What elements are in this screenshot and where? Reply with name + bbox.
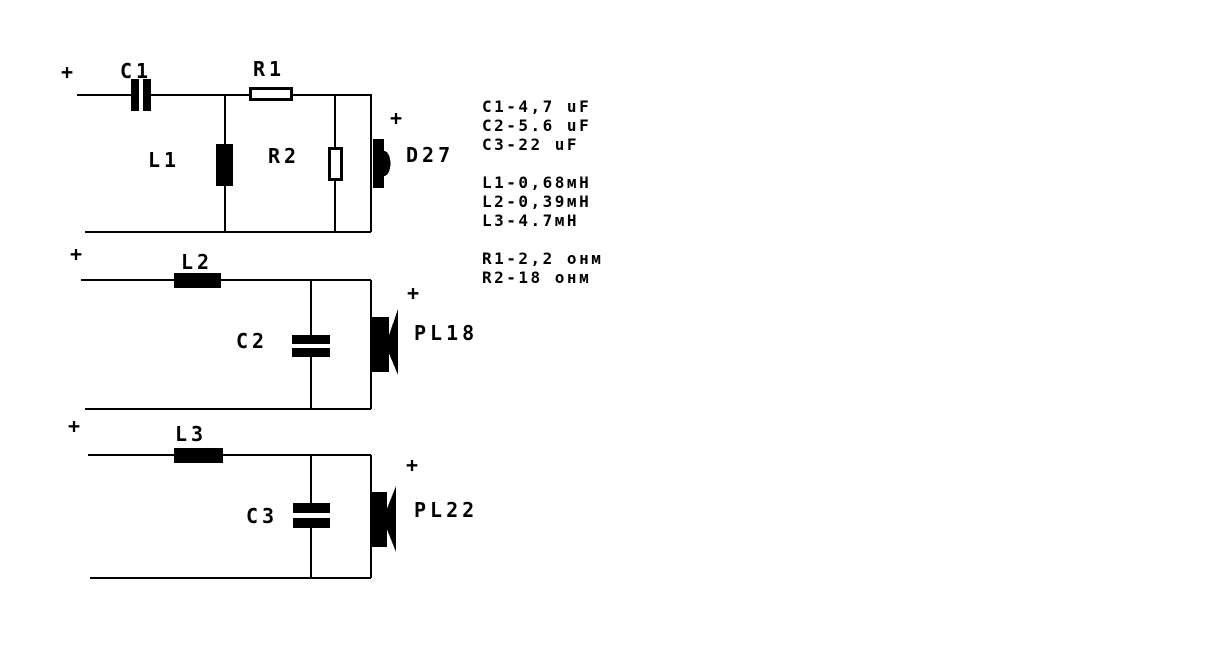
tweeter-circuit	[77, 79, 391, 232]
label-capacitor-c3: C3	[246, 506, 278, 526]
label-capacitor-c2: C2	[236, 331, 268, 351]
legend-line: L1-0,68мН	[482, 173, 591, 192]
legend-line: L2-0,39мН	[482, 192, 591, 211]
capacitor-c1-symbol	[131, 79, 151, 111]
legend-line: C2-5.6 uF	[482, 116, 591, 135]
inductor-l2-symbol	[174, 273, 221, 288]
label-resistor-r2: R2	[268, 146, 300, 166]
label-capacitor-c1: C1	[120, 61, 152, 81]
legend-inductor-values: L1-0,68мН L2-0,39мН L3-4.7мН	[482, 173, 591, 230]
speaker-pl22-symbol	[372, 486, 396, 552]
resistor-r1-symbol	[251, 89, 292, 100]
crossover-schematic: + + + + + + C1 R1 L1 R2 D27 L2 C2 PL18 L…	[0, 0, 1213, 659]
wires	[81, 280, 371, 409]
tweeter-d27-symbol	[373, 139, 391, 188]
polarity-plus-tweeter-speaker: +	[390, 108, 402, 128]
label-speaker-pl18: PL18	[414, 323, 478, 343]
polarity-plus-tweeter-input: +	[61, 62, 73, 82]
label-inductor-l2: L2	[181, 252, 213, 272]
label-resistor-r1: R1	[253, 59, 285, 79]
label-inductor-l1: L1	[148, 150, 180, 170]
legend-line: C3-22 uF	[482, 135, 591, 154]
label-speaker-pl22: PL22	[414, 500, 478, 520]
legend-line: L3-4.7мН	[482, 211, 591, 230]
polarity-plus-mid-speaker: +	[407, 283, 419, 303]
label-inductor-l3: L3	[175, 424, 207, 444]
legend-line: R2-18 онм	[482, 268, 603, 287]
legend-line: C1-4,7 uF	[482, 97, 591, 116]
wires	[88, 455, 371, 578]
polarity-plus-woofer-speaker: +	[406, 455, 418, 475]
inductor-l1-symbol	[216, 144, 233, 186]
speaker-pl18-symbol	[372, 309, 398, 375]
schematic-drawing	[0, 0, 1213, 659]
inductor-l3-symbol	[174, 448, 223, 463]
legend-line: R1-2,2 онм	[482, 249, 603, 268]
polarity-plus-mid-input: +	[70, 244, 82, 264]
woofer-circuit	[88, 448, 396, 578]
resistor-r2-symbol	[330, 149, 342, 180]
capacitor-c2-symbol	[292, 335, 330, 357]
legend-capacitor-values: C1-4,7 uF C2-5.6 uF C3-22 uF	[482, 97, 591, 154]
capacitor-c3-symbol	[293, 503, 330, 528]
legend-resistor-values: R1-2,2 онм R2-18 онм	[482, 249, 603, 287]
polarity-plus-woofer-input: +	[68, 416, 80, 436]
label-speaker-d27: D27	[406, 145, 454, 165]
